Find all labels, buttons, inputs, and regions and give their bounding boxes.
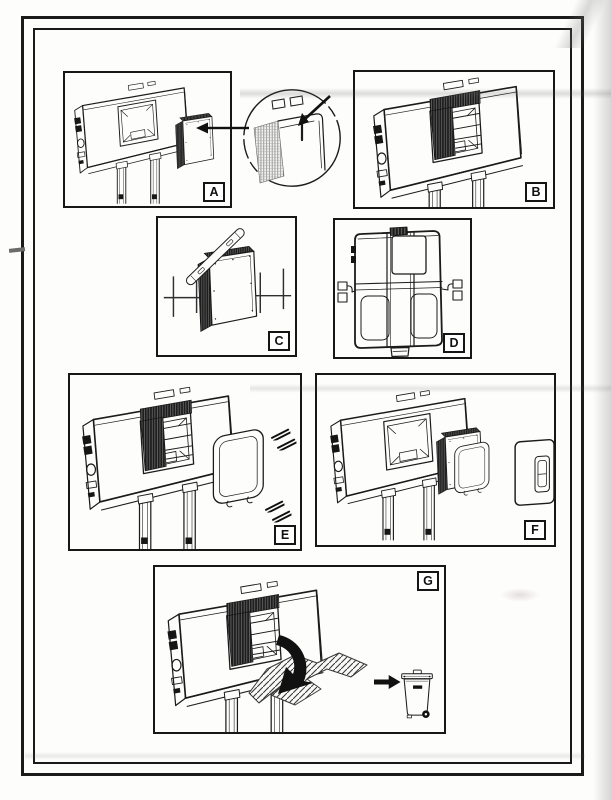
panel-label-d: D	[443, 333, 465, 353]
screw-icons	[265, 429, 297, 522]
illustration-g-discard-protection	[155, 567, 444, 732]
panel-label-a: A	[203, 182, 225, 202]
panel-label-b: B	[525, 182, 547, 202]
scan-edge-shadow	[593, 0, 611, 800]
seal-frame-icon	[455, 441, 489, 495]
waste-bin-icon	[402, 670, 433, 718]
panel-g: G	[153, 565, 446, 734]
magnifier-detail-circle	[242, 88, 342, 188]
panel-label-c: C	[268, 331, 290, 351]
panel-label-e: E	[274, 525, 296, 545]
panel-b: B	[353, 70, 555, 209]
arrow-right-icon	[374, 675, 401, 689]
panel-d: D	[333, 218, 472, 359]
illustration-b-block-inserted	[355, 72, 553, 207]
wall-bracket-right-icon	[442, 280, 462, 300]
wall-bracket-left-icon	[338, 282, 355, 302]
panel-f: F	[315, 373, 556, 547]
callout-arrow-icon	[195, 120, 249, 136]
instruction-sheet-page: A B C	[0, 0, 611, 800]
panel-label-g: G	[417, 571, 439, 591]
panel-c: C	[156, 216, 297, 357]
panel-label-f: F	[524, 520, 546, 540]
flush-plate-icon	[515, 439, 554, 505]
mounting-frame-icon	[213, 428, 263, 507]
panel-e: E	[68, 373, 302, 551]
panel-a: A	[63, 71, 232, 208]
illustration-e-mounting-frame-screws	[70, 375, 300, 549]
illustration-f-block-seal-plate	[317, 375, 554, 545]
